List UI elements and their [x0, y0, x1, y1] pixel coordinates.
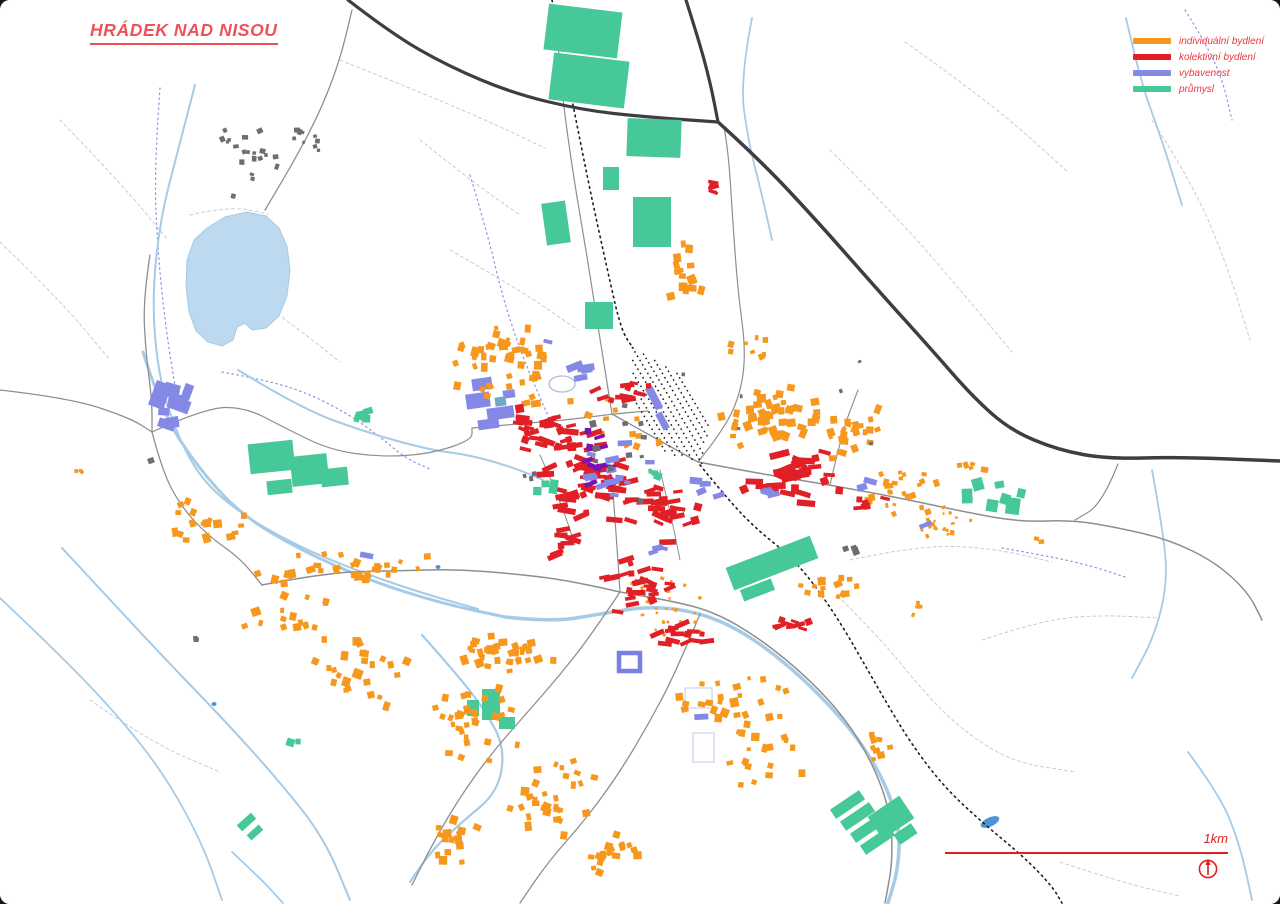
scale-label: 1km — [1140, 831, 1228, 846]
legend-item: průmysl — [1133, 84, 1264, 94]
legend-swatch — [1133, 54, 1171, 61]
legend: individuální bydleníkolektivní bydlenívy… — [1133, 36, 1264, 94]
legend-item: kolektivní bydlení — [1133, 52, 1264, 62]
legend-swatch — [1133, 70, 1171, 77]
legend-swatch — [1133, 38, 1171, 45]
map-canvas — [0, 0, 1280, 904]
legend-item: individuální bydlení — [1133, 36, 1264, 46]
map-sheet: HRÁDEK NAD NISOU individuální bydleníkol… — [0, 0, 1280, 904]
north-indicator-icon — [1196, 856, 1220, 880]
legend-item: vybavenost — [1133, 68, 1264, 78]
map-title: HRÁDEK NAD NISOU — [90, 20, 278, 45]
legend-swatch — [1133, 86, 1171, 93]
legend-item-label: průmysl — [1179, 84, 1214, 95]
legend-item-label: individuální bydlení — [1179, 36, 1264, 47]
legend-item-label: vybavenost — [1179, 68, 1230, 79]
scale-bar — [945, 852, 1228, 854]
legend-item-label: kolektivní bydlení — [1179, 52, 1256, 63]
